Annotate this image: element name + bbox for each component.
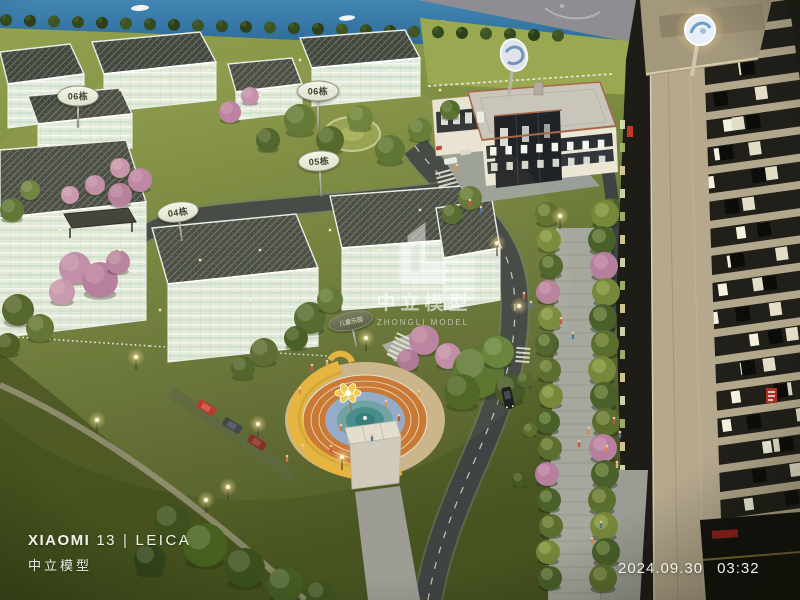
timestamp-time: 03:32 bbox=[717, 560, 760, 577]
timestamp: 2024.09.3003:32 bbox=[618, 560, 760, 577]
photo-canvas: 06栋 06栋 05栋 04栋 儿童乐园 中立模型 ZHONGLI MODEL … bbox=[0, 0, 800, 600]
model-scene bbox=[0, 0, 800, 600]
building-sign-label: 06栋 bbox=[308, 85, 329, 98]
building-sign-06-right: 06栋 bbox=[318, 91, 360, 112]
camera-brand: XIAOMI bbox=[28, 532, 90, 549]
camera-device-line: XIAOMI13|LEICA bbox=[28, 532, 191, 549]
building-sign-04: 04栋 bbox=[178, 212, 220, 233]
camera-watermark: XIAOMI13|LEICA 中立模型 bbox=[28, 532, 191, 574]
camera-separator: | bbox=[123, 532, 128, 549]
building-sign-06-left: 06栋 bbox=[78, 96, 120, 117]
kids-area-sign: 儿童乐园 bbox=[351, 321, 397, 340]
building-sign-label: 05栋 bbox=[308, 154, 329, 168]
camera-lens: LEICA bbox=[135, 532, 191, 549]
camera-model: 13 bbox=[96, 532, 116, 549]
building-sign-label: 06栋 bbox=[68, 90, 89, 103]
timestamp-date: 2024.09.30 bbox=[618, 560, 703, 577]
building-sign-label: 04栋 bbox=[167, 204, 189, 220]
kids-area-sign-label: 儿童乐园 bbox=[338, 314, 363, 328]
building-sign-05: 05栋 bbox=[319, 161, 361, 182]
camera-studio: 中立模型 bbox=[28, 555, 191, 574]
